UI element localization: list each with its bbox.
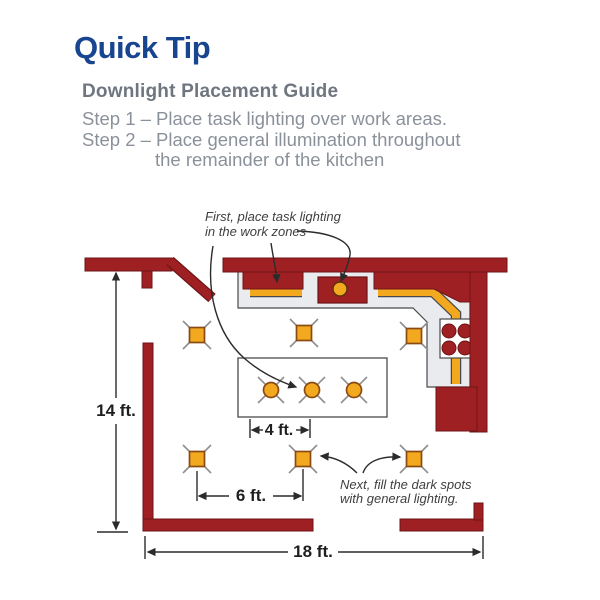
square-downlight-icon [183, 445, 211, 473]
task-note-line2: in the work zones [205, 224, 307, 239]
square-downlight-icon [400, 445, 428, 473]
wall-left [143, 343, 153, 531]
general-note-arrows [321, 456, 400, 473]
wall-door-jamb [142, 271, 152, 288]
island-dimension-label: 4 ft. [265, 422, 293, 439]
wall-bottom-right [400, 519, 483, 531]
square-downlight-icon [183, 321, 211, 349]
refrigerator [436, 387, 477, 431]
sink-unit [318, 277, 367, 303]
square-downlight-icon [400, 322, 428, 350]
task-note: First, place task lighting in the work z… [205, 209, 342, 239]
task-note-line1: First, place task lighting [205, 209, 342, 224]
wall-top [223, 258, 507, 272]
door-swing [170, 261, 212, 298]
upper-cabinet-left [243, 271, 303, 289]
general-note: Next, fill the dark spots with general l… [340, 477, 472, 506]
height-dimension-label: 14 ft. [96, 401, 136, 420]
quick-tip-infographic: Quick Tip Downlight Placement Guide Step… [0, 0, 600, 600]
general-note-line2: with general lighting. [340, 491, 459, 506]
four-burner-stove-icon [440, 319, 474, 358]
wall-top-left [85, 258, 172, 271]
kitchen-floor-plan: First, place task lighting in the work z… [0, 0, 600, 600]
wall-bottom-right-stub [474, 503, 483, 520]
spacing-dimension-label: 6 ft. [236, 486, 266, 505]
general-note-line1: Next, fill the dark spots [340, 477, 472, 492]
wall-bottom-left [143, 519, 313, 531]
sink-task-light-icon [333, 282, 347, 296]
square-downlight-icon [290, 319, 318, 347]
square-downlight-icon [289, 445, 317, 473]
width-dimension-label: 18 ft. [293, 542, 333, 561]
